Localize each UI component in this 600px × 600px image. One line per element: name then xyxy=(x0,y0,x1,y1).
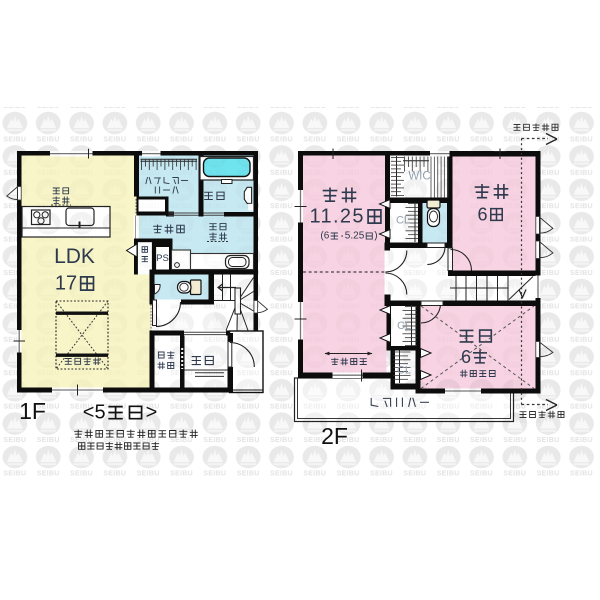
svg-text:>: > xyxy=(146,402,158,424)
svg-text:2F: 2F xyxy=(321,423,348,449)
svg-text:<5: <5 xyxy=(83,402,106,424)
svg-text:1F: 1F xyxy=(19,398,46,424)
